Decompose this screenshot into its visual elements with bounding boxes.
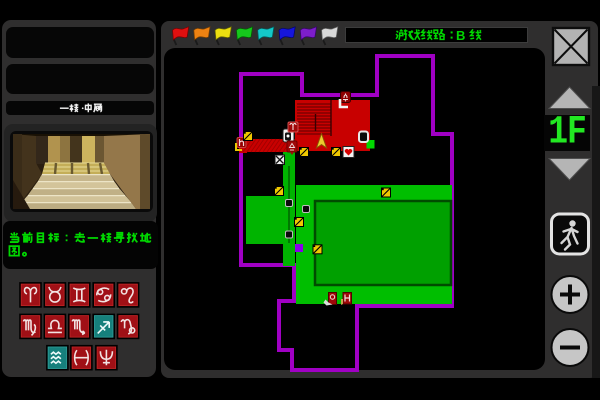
svg-text:B: B xyxy=(456,28,465,43)
